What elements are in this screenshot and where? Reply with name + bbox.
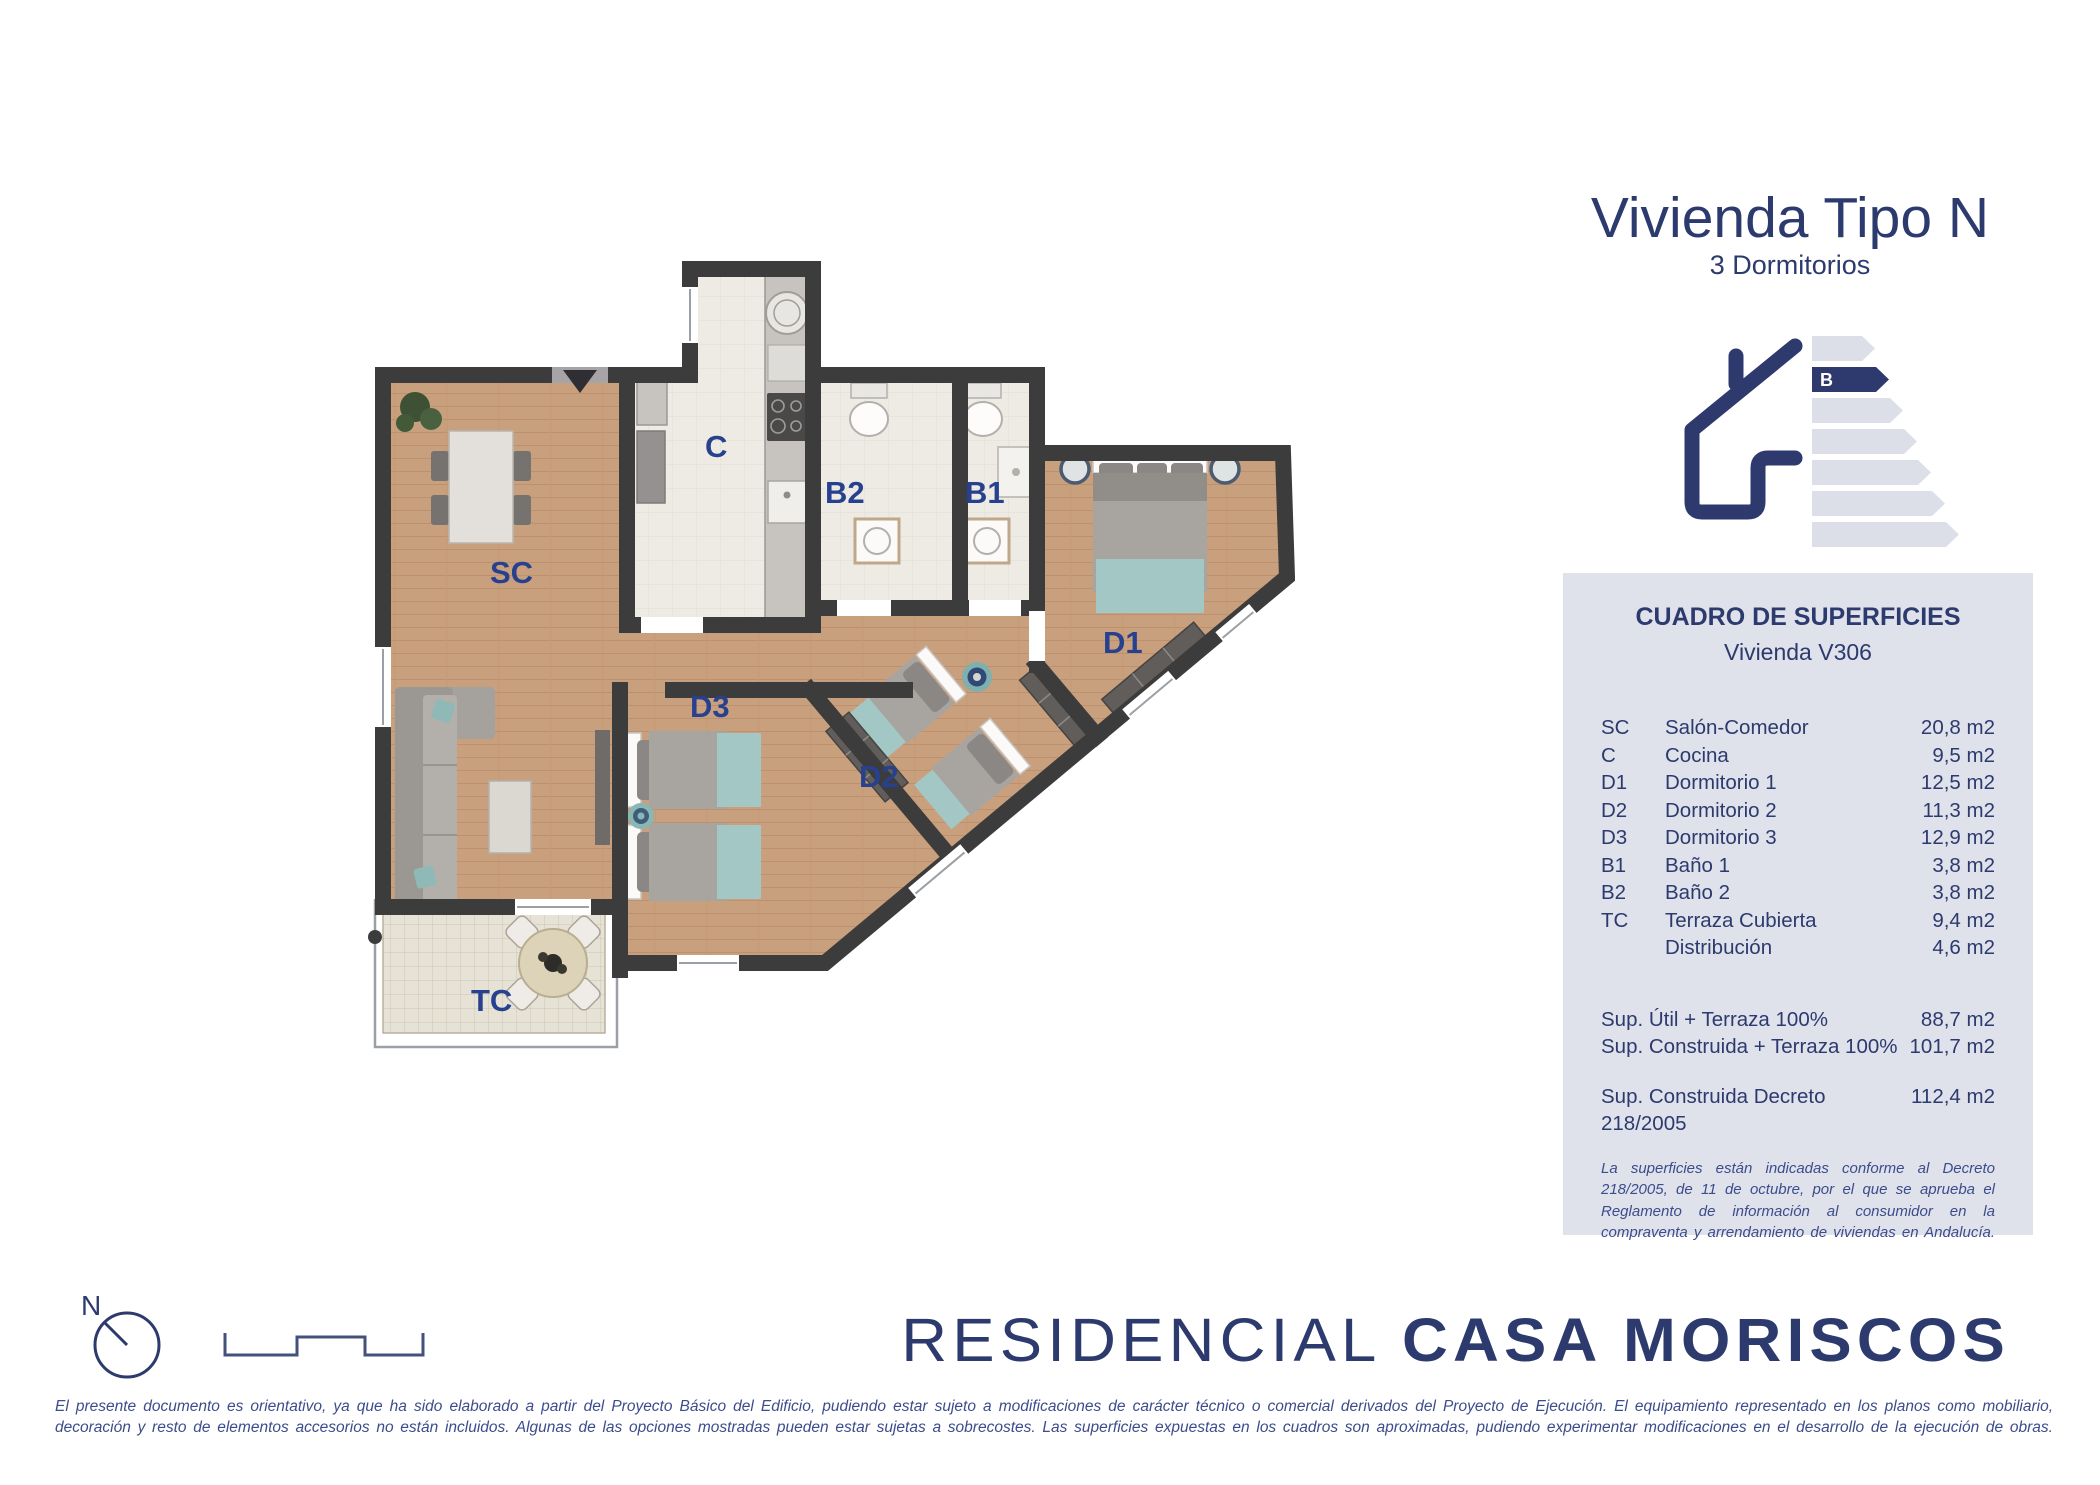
page-title: Vivienda Tipo N xyxy=(1530,188,2050,248)
scale-bar-icon xyxy=(218,1322,433,1367)
brochure-page: SC C B2 B1 D1 D3 D2 TC Vivienda Tipo N 3… xyxy=(0,0,2100,1485)
energy-rating-letter: B xyxy=(1820,370,1833,390)
toilet-icon xyxy=(964,402,1002,436)
room-label-b2: B2 xyxy=(825,475,865,510)
table-row: D3 Dormitorio 3 12,9 m2 xyxy=(1601,824,1995,852)
sink-icon xyxy=(965,519,1009,563)
tv-sideboard xyxy=(595,730,610,845)
room-label-c: C xyxy=(705,429,727,464)
table-row: D1 Dormitorio 1 12,5 m2 xyxy=(1601,769,1995,797)
house-icon xyxy=(1692,346,1795,512)
disclaimer-line-2: decoración y resto de elementos accesori… xyxy=(55,1417,2053,1438)
panel-note: La superficies están indicadas conforme … xyxy=(1601,1158,1995,1244)
disclaimer: El presente documento es orientativo, ya… xyxy=(55,1396,2053,1438)
surfaces-panel: CUADRO DE SUPERFICIES Vivienda V306 SC S… xyxy=(1563,573,2033,1235)
brand-name: CASA MORISCOS xyxy=(1402,1306,2010,1374)
bed-single xyxy=(627,731,761,809)
table-row: TC Terraza Cubierta 9,4 m2 xyxy=(1601,907,1995,935)
room-label-tc: TC xyxy=(471,983,512,1018)
room-label-sc: SC xyxy=(490,555,533,590)
total-row: Sup. Construida + Terraza 100% 101,7 m2 xyxy=(1601,1033,1995,1061)
energy-bars: B xyxy=(1812,336,1959,547)
room-label-b1: B1 xyxy=(965,475,1005,510)
coffee-table xyxy=(489,781,531,853)
table-row: C Cocina 9,5 m2 xyxy=(1601,742,1995,770)
sink-icon xyxy=(855,519,899,563)
table-row: B2 Baño 2 3,8 m2 xyxy=(1601,879,1995,907)
room-label-d2: D2 xyxy=(859,759,899,794)
terrace-post xyxy=(368,930,382,944)
table-row: D2 Dormitorio 2 11,3 m2 xyxy=(1601,797,1995,825)
totals-block: Sup. Útil + Terraza 100% 88,7 m2 Sup. Co… xyxy=(1563,1006,2033,1061)
round-rug xyxy=(628,803,654,829)
terrace-table-set xyxy=(504,914,603,1013)
brand-prefix: RESIDENCIAL xyxy=(901,1306,1402,1374)
table-row: B1 Baño 1 3,8 m2 xyxy=(1601,852,1995,880)
bed-single xyxy=(627,823,761,901)
page-subtitle: 3 Dormitorios xyxy=(1530,250,2050,281)
surfaces-table: SC Salón-Comedor 20,8 m2 C Cocina 9,5 m2… xyxy=(1563,714,2033,962)
disclaimer-line-1: El presente documento es orientativo, ya… xyxy=(55,1396,2053,1417)
energy-rating-icon: B xyxy=(1652,330,2022,575)
table-row: SC Salón-Comedor 20,8 m2 xyxy=(1601,714,1995,742)
panel-subheader: Vivienda V306 xyxy=(1563,639,2033,666)
cooktop xyxy=(767,393,807,441)
total-row: Sup. Útil + Terraza 100% 88,7 m2 xyxy=(1601,1006,1995,1034)
table-row: Distribución 4,6 m2 xyxy=(1601,934,1995,962)
round-rug xyxy=(962,662,992,692)
room-label-d1: D1 xyxy=(1103,625,1143,660)
room-label-d3: D3 xyxy=(690,689,730,724)
north-compass-icon: N xyxy=(55,1283,185,1413)
kitchen-sink xyxy=(768,481,806,523)
panel-header: CUADRO DE SUPERFICIES xyxy=(1563,603,2033,632)
title-block: Vivienda Tipo N 3 Dormitorios xyxy=(1530,188,2050,281)
decree-row: Sup. Construida Decreto 218/2005 112,4 m… xyxy=(1563,1083,2033,1138)
compass-n-label: N xyxy=(81,1290,101,1321)
brand-lockup: RESIDENCIAL CASA MORISCOS xyxy=(856,1305,2010,1375)
floor-plan: SC C B2 B1 D1 D3 D2 TC xyxy=(265,225,1295,1070)
toilet-icon xyxy=(850,402,888,436)
